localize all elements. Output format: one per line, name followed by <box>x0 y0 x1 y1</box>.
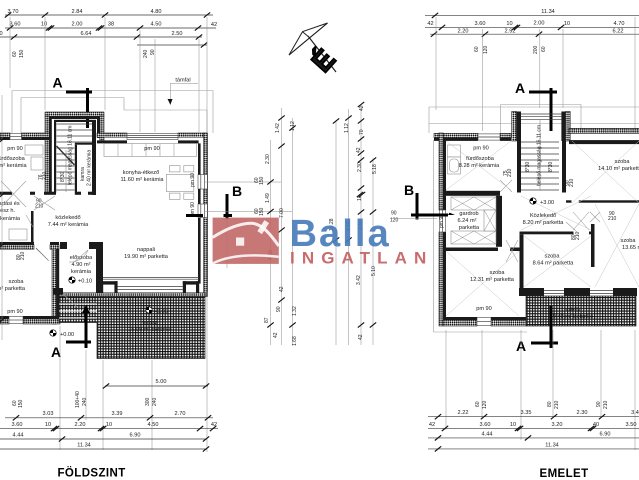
svg-text:2.40 m² kerámia: 2.40 m² kerámia <box>87 150 93 186</box>
svg-text:87: 87 <box>264 317 270 323</box>
svg-text:9.40 m² betonkő: 9.40 m² betonkő <box>553 314 593 320</box>
svg-text:3.20: 3.20 <box>552 422 563 428</box>
svg-text:A: A <box>52 75 62 91</box>
svg-text:6.90: 6.90 <box>130 433 141 439</box>
svg-text:10: 10 <box>357 195 363 201</box>
svg-text:6.90: 6.90 <box>600 432 611 438</box>
svg-text:2.20: 2.20 <box>458 29 469 35</box>
svg-text:10: 10 <box>45 422 51 428</box>
svg-text:lelépő magasság 16.11 cm: lelépő magasság 16.11 cm <box>68 126 74 185</box>
svg-text:6.64: 6.64 <box>81 31 92 37</box>
svg-text:2.70: 2.70 <box>175 411 186 417</box>
svg-text:10: 10 <box>506 21 512 27</box>
svg-text:60: 60 <box>541 46 547 52</box>
svg-text:A: A <box>515 80 525 96</box>
svg-text:240: 240 <box>152 397 158 406</box>
svg-text:1.12: 1.12 <box>344 123 350 133</box>
svg-text:38: 38 <box>108 22 114 28</box>
svg-text:2.30: 2.30 <box>357 162 363 172</box>
svg-text:2.00: 2.00 <box>72 22 83 28</box>
svg-text:1.12: 1.12 <box>290 121 296 131</box>
svg-text:-0.05: -0.05 <box>155 309 168 315</box>
svg-text:7.44 m² kerámia: 7.44 m² kerámia <box>48 222 89 228</box>
svg-text:300: 300 <box>145 397 151 406</box>
svg-text:42: 42 <box>211 22 217 28</box>
svg-text:terasz: terasz <box>142 320 157 326</box>
svg-text:5.18: 5.18 <box>372 164 378 174</box>
svg-text:4.90 m²: 4.90 m² <box>72 262 91 268</box>
svg-text:240: 240 <box>82 397 88 406</box>
svg-text:tartási és: tartási és <box>0 201 20 207</box>
svg-text:EMELET: EMELET <box>540 468 589 480</box>
svg-text:pm 90: pm 90 <box>7 146 23 152</box>
svg-text:10: 10 <box>510 422 516 428</box>
svg-text:2.50: 2.50 <box>172 31 183 37</box>
svg-text:8.20 m² parketta: 8.20 m² parketta <box>523 220 565 226</box>
svg-text:3.50: 3.50 <box>626 422 637 428</box>
svg-text:5.00: 5.00 <box>156 379 167 385</box>
svg-text:120: 120 <box>482 400 488 409</box>
svg-text:gardrob: gardrob <box>459 211 478 217</box>
svg-text:belépő magasság 16.11 cm: belépő magasság 16.11 cm <box>537 125 543 186</box>
svg-text:szoba: szoba <box>545 254 561 260</box>
svg-text:támfal: támfal <box>175 78 190 84</box>
svg-text:B: B <box>404 182 414 198</box>
svg-text:6.24 m²: 6.24 m² <box>458 218 477 224</box>
svg-text:11.34: 11.34 <box>541 9 555 15</box>
svg-text:szoba: szoba <box>9 279 25 285</box>
svg-text:szoba: szoba <box>490 270 506 276</box>
svg-text:konyha-étkező: konyha-étkező <box>123 170 159 176</box>
svg-text:1.32: 1.32 <box>292 306 298 316</box>
svg-text:Közlekedő: Közlekedő <box>530 213 556 219</box>
svg-text:3.4: 3.4 <box>631 410 639 416</box>
svg-text:90: 90 <box>276 306 282 312</box>
svg-text:42: 42 <box>356 147 362 153</box>
svg-text:14.10 m² parketta: 14.10 m² parketta <box>598 166 639 172</box>
svg-text:4.50: 4.50 <box>151 22 162 28</box>
svg-text:150: 150 <box>259 176 265 185</box>
svg-text:parketta: parketta <box>459 225 480 231</box>
svg-text:210: 210 <box>569 178 575 187</box>
svg-text:11.60 m² kerámia: 11.60 m² kerámia <box>120 177 164 183</box>
svg-text:3.42: 3.42 <box>356 275 362 285</box>
svg-text:3.60: 3.60 <box>480 422 491 428</box>
svg-text:6.22: 6.22 <box>613 29 624 35</box>
svg-text:15.09 m² betonkő: 15.09 m² betonkő <box>128 327 172 333</box>
svg-text:pm 90: pm 90 <box>7 309 23 315</box>
svg-text:4.70: 4.70 <box>614 21 625 27</box>
svg-text:3.35: 3.35 <box>521 410 532 416</box>
svg-text:pész h.: pész h. <box>0 208 15 214</box>
svg-text:2.22: 2.22 <box>458 410 469 416</box>
svg-text:120: 120 <box>483 45 489 54</box>
svg-text:42: 42 <box>273 332 279 338</box>
svg-text:80: 80 <box>547 401 553 407</box>
svg-text:3.03: 3.03 <box>43 411 54 417</box>
svg-text:A: A <box>51 344 61 360</box>
svg-text:60: 60 <box>474 46 480 52</box>
svg-text:2.20: 2.20 <box>75 422 86 428</box>
svg-text:70: 70 <box>359 129 365 135</box>
svg-text:42: 42 <box>429 422 435 428</box>
svg-text:210: 210 <box>608 216 617 222</box>
svg-text:8.28 m² kerámia: 8.28 m² kerámia <box>459 163 500 169</box>
svg-text:60: 60 <box>12 51 18 57</box>
svg-text:INGATLAN: INGATLAN <box>290 249 433 268</box>
svg-text:8.64 m² parketta: 8.64 m² parketta <box>533 261 575 267</box>
svg-text:210: 210 <box>554 400 560 409</box>
svg-text:2.30: 2.30 <box>265 154 271 164</box>
svg-text:fürdőszoba: fürdőszoba <box>466 156 495 162</box>
svg-text:150: 150 <box>18 399 24 408</box>
svg-text:42: 42 <box>211 422 217 428</box>
svg-text:200: 200 <box>533 45 539 54</box>
svg-text:40: 40 <box>593 422 599 428</box>
svg-text:42: 42 <box>279 286 285 292</box>
svg-text:2.30: 2.30 <box>577 410 588 416</box>
svg-text:9 m² parketta: 9 m² parketta <box>0 286 26 292</box>
svg-text:2.00: 2.00 <box>534 21 545 27</box>
svg-text:1.49: 1.49 <box>265 193 271 203</box>
svg-text:4.80: 4.80 <box>151 9 162 15</box>
svg-text:m² kerámia: m² kerámia <box>0 216 21 222</box>
svg-text:pm 90: pm 90 <box>473 146 489 152</box>
svg-text:+3.00: +3.00 <box>540 200 554 206</box>
svg-text:FÖLDSZINT: FÖLDSZINT <box>58 467 126 480</box>
svg-text:3.60: 3.60 <box>475 21 486 27</box>
svg-text:12.31 m² parketta: 12.31 m² parketta <box>470 277 515 283</box>
svg-text:pm 90: pm 90 <box>190 202 196 216</box>
svg-text:8*30: 8*30 <box>525 161 531 172</box>
svg-text:5.10: 5.10 <box>371 266 377 276</box>
svg-text:42: 42 <box>427 21 433 27</box>
svg-text:3.60: 3.60 <box>12 422 23 428</box>
svg-text:10: 10 <box>564 21 570 27</box>
svg-text:pm 90: pm 90 <box>144 146 160 152</box>
svg-text:B: B <box>232 183 242 199</box>
svg-text:2.84: 2.84 <box>72 9 83 15</box>
svg-text:4.44: 4.44 <box>482 432 493 438</box>
svg-text:10: 10 <box>41 22 47 28</box>
svg-text:100+40: 100+40 <box>75 391 81 408</box>
svg-text:10: 10 <box>106 422 112 428</box>
svg-text:240: 240 <box>143 49 149 58</box>
svg-text:8*30: 8*30 <box>60 171 66 182</box>
svg-text:1.68: 1.68 <box>292 336 298 346</box>
svg-text:210: 210 <box>42 171 48 180</box>
svg-text:1.42: 1.42 <box>275 123 281 133</box>
svg-text:+0.10: +0.10 <box>78 279 92 285</box>
svg-text:210: 210 <box>507 168 513 177</box>
svg-text:8*30: 8*30 <box>548 161 554 172</box>
svg-text:pm 90: pm 90 <box>190 173 196 187</box>
svg-text:pm 90: pm 90 <box>476 306 492 312</box>
svg-text:szoba: szoba <box>615 159 631 165</box>
svg-text:kerámia: kerámia <box>71 269 92 275</box>
svg-text:60: 60 <box>475 401 481 407</box>
svg-text:nappali: nappali <box>137 247 155 253</box>
svg-text:150: 150 <box>19 49 25 58</box>
svg-text:11.34: 11.34 <box>77 443 91 449</box>
svg-text:3.60: 3.60 <box>10 22 21 28</box>
svg-text:7.00: 7.00 <box>279 208 285 218</box>
svg-text:0: 0 <box>0 31 3 37</box>
svg-text:erkély: erkély <box>566 307 581 313</box>
svg-text:150: 150 <box>259 207 265 216</box>
svg-text:90: 90 <box>596 401 602 407</box>
svg-text:fürdőszoba: fürdőszoba <box>0 156 26 162</box>
svg-text:210: 210 <box>575 231 581 240</box>
svg-text:13.65 m² par: 13.65 m² par <box>622 245 639 251</box>
svg-text:közlekedő: közlekedő <box>55 215 80 221</box>
svg-text:3.39: 3.39 <box>112 411 123 417</box>
svg-text:42: 42 <box>358 334 364 340</box>
svg-text:8 m² kerámia: 8 m² kerámia <box>0 163 28 169</box>
svg-text:2.92: 2.92 <box>505 29 516 35</box>
svg-text:19.90 m² parketta: 19.90 m² parketta <box>124 254 169 260</box>
svg-text:42: 42 <box>359 105 365 111</box>
svg-text:szoba: szoba <box>621 238 637 244</box>
svg-text:210: 210 <box>20 251 26 260</box>
svg-text:4.44: 4.44 <box>13 433 24 439</box>
svg-text:4.50: 4.50 <box>148 422 159 428</box>
svg-text:11.34: 11.34 <box>545 443 559 449</box>
svg-text:kamra: kamra <box>80 167 86 181</box>
svg-text:90: 90 <box>391 211 397 217</box>
svg-text:210: 210 <box>603 400 609 409</box>
svg-text:3.70: 3.70 <box>8 9 19 15</box>
svg-text:+0.00: +0.00 <box>60 332 74 338</box>
